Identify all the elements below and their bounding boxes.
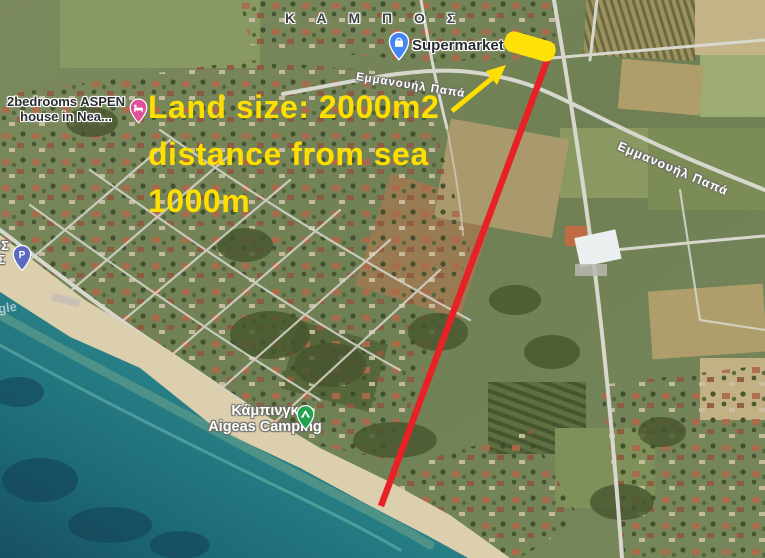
edge-label-line2: ΑΣ [0, 253, 9, 267]
aspen-listing-label[interactable]: 2bedrooms ASPEN house in Nea... [2, 94, 130, 124]
pin-body [130, 99, 147, 123]
aspen-pin[interactable] [129, 98, 148, 124]
edge-label-line1: ΟΣ [0, 239, 9, 253]
aspen-label-line1: 2bedrooms ASPEN [2, 94, 130, 109]
supermarket-label[interactable]: Supermarket Πα [412, 37, 528, 54]
parking-letter-icon: P [19, 250, 26, 261]
camping-pin[interactable] [296, 404, 315, 431]
supermarket-pin[interactable] [388, 31, 410, 61]
area-label-kampos: Κ Α Μ Π Ο Σ [285, 10, 464, 26]
parking-pin[interactable]: P [12, 244, 32, 272]
aspen-label-line2: house in Nea... [2, 109, 130, 124]
edge-label-clipped: ΟΣ ΑΣ [0, 239, 9, 267]
satellite-map-view[interactable]: Κ Α Μ Π Ο Σ Supermarket Πα Εμμανουήλ Παπ… [0, 0, 765, 558]
google-watermark-fragment: gle [0, 299, 18, 316]
